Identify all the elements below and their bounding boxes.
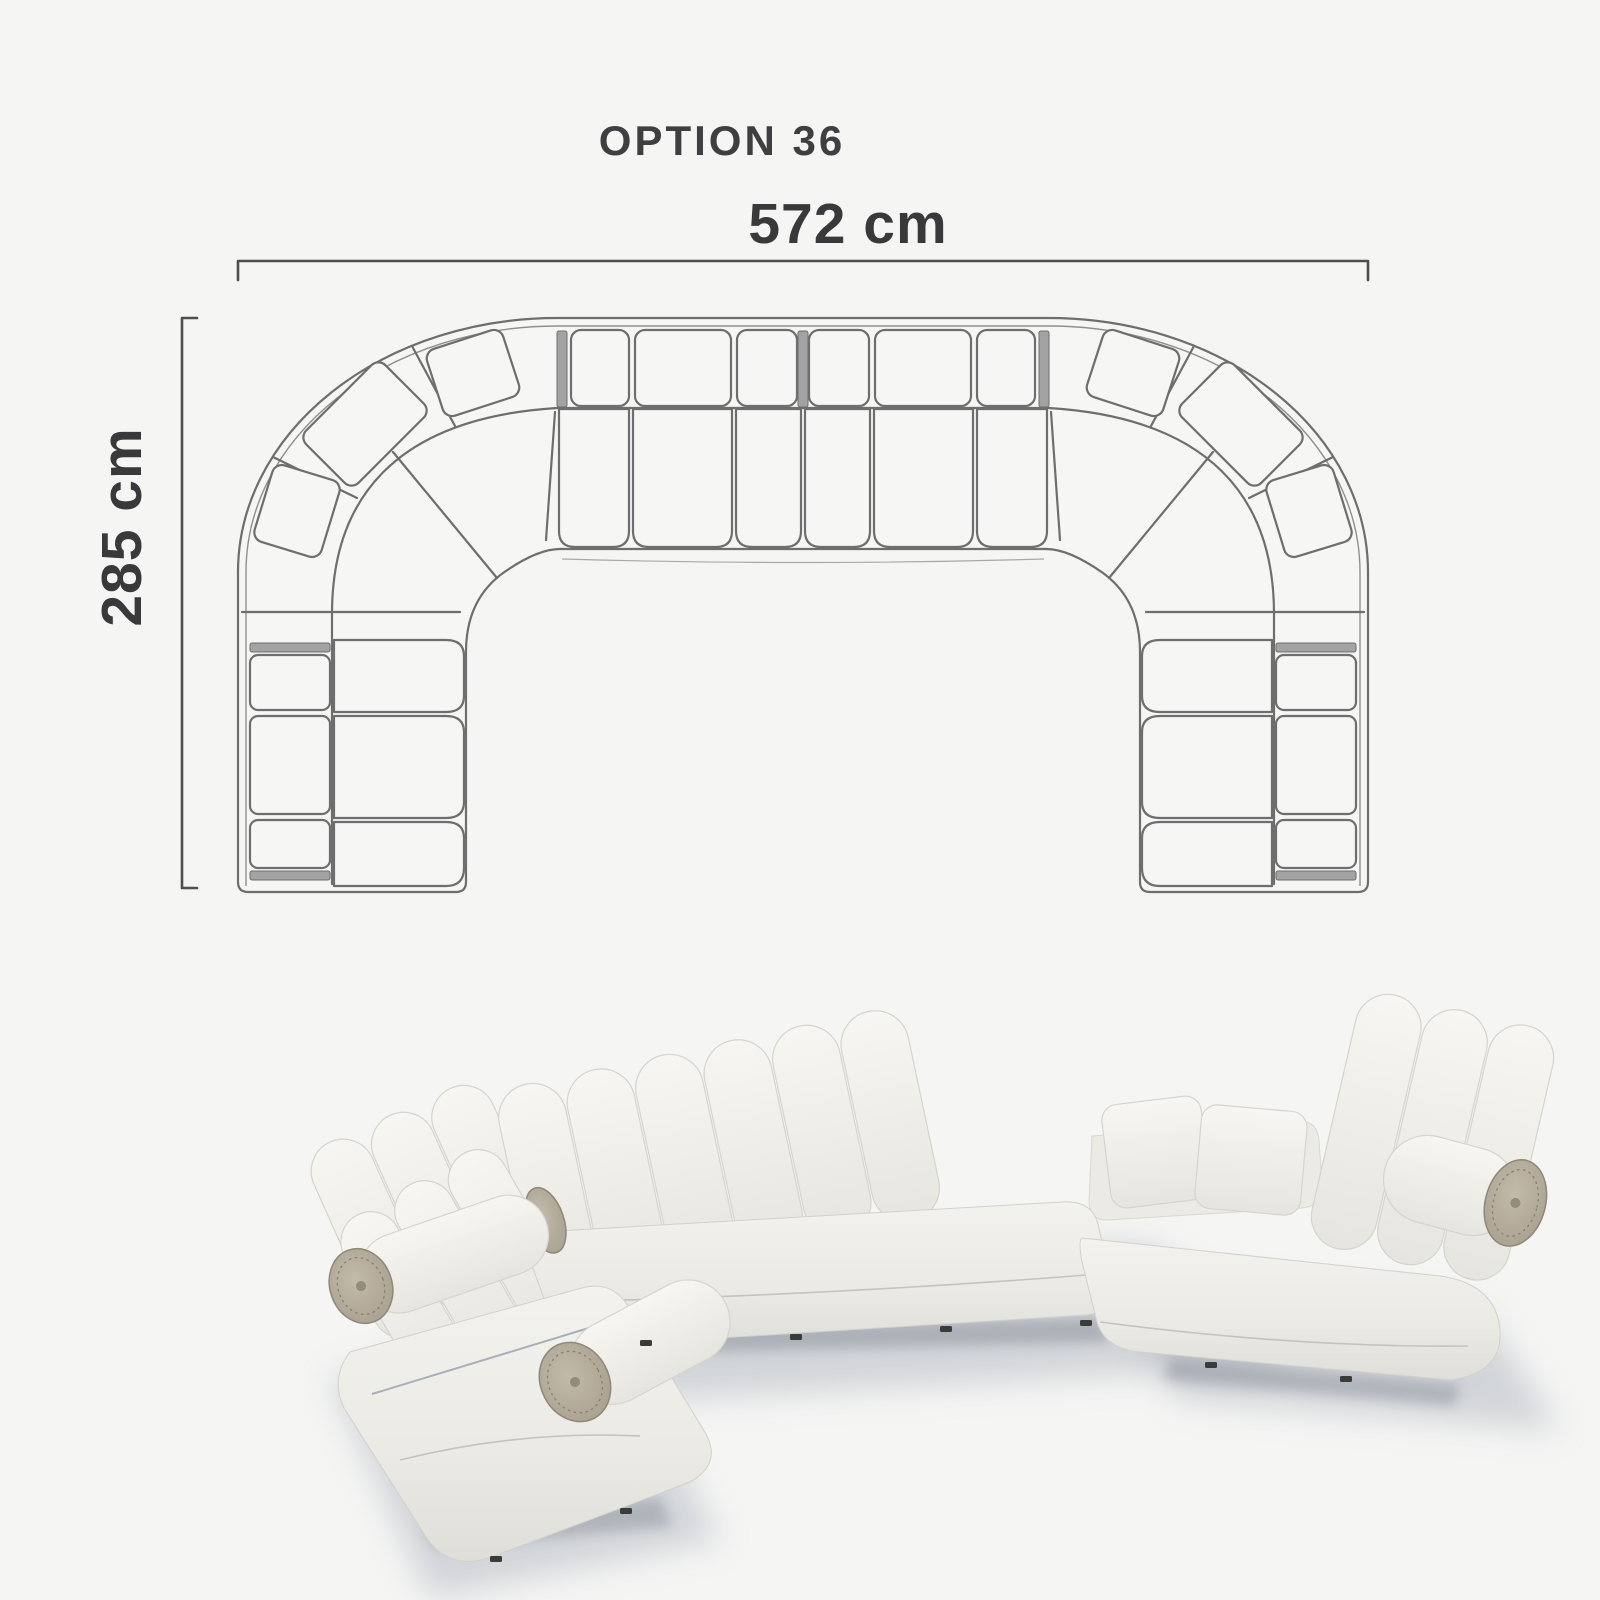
sofa-3d-render	[301, 988, 1560, 1598]
back-cushion	[1276, 820, 1356, 868]
product-spec-image: OPTION 36 572 cm 285 cm	[0, 0, 1600, 1600]
seat-module	[334, 716, 464, 818]
width-dimension-label: 572 cm	[748, 192, 947, 256]
foot	[640, 1340, 652, 1346]
seat-module	[805, 409, 870, 547]
back-cushion	[635, 330, 731, 406]
seat-module	[633, 409, 732, 547]
foot	[940, 1326, 952, 1332]
back-cushion	[977, 330, 1035, 406]
left-leg-modules	[250, 640, 464, 886]
throw-pillow	[1194, 1104, 1309, 1217]
divider-bar	[250, 643, 330, 652]
back-cushion	[1276, 655, 1356, 710]
foot	[1340, 1376, 1352, 1382]
seat-module	[1142, 822, 1272, 886]
back-cushion	[250, 655, 330, 710]
throw-pillows	[1100, 1094, 1308, 1216]
seat-front-edge-line	[562, 559, 1044, 563]
floor-plan-diagram: OPTION 36 572 cm 285 cm	[90, 117, 1368, 892]
back-cushion	[875, 330, 971, 406]
foot	[1205, 1362, 1217, 1368]
back-cushion	[737, 330, 797, 406]
foot	[620, 1508, 632, 1514]
seat-module	[736, 409, 801, 547]
right-leg-modules	[1142, 640, 1356, 886]
back-cushion	[250, 716, 330, 814]
back-cushion	[250, 820, 330, 868]
seat-module	[874, 409, 973, 547]
foot	[490, 1556, 502, 1562]
divider-bar	[1276, 871, 1356, 880]
seat-module	[334, 640, 464, 712]
seat-module	[559, 409, 629, 547]
width-dimension-line	[238, 261, 1368, 280]
plan-title: OPTION 36	[599, 117, 845, 164]
seat-module	[1142, 716, 1272, 818]
back-cushion	[809, 330, 869, 406]
foot	[1080, 1320, 1092, 1326]
seat-module	[334, 822, 464, 886]
divider-bar	[798, 331, 808, 407]
divider-bar	[1039, 331, 1049, 407]
depth-dimension-label: 285 cm	[90, 427, 154, 626]
divider-bar	[557, 331, 567, 407]
depth-dimension-line	[182, 318, 197, 888]
back-cushion	[1276, 716, 1356, 814]
back-cushion	[571, 330, 629, 406]
foot	[790, 1334, 802, 1340]
sofa-top-view-drawing	[238, 318, 1368, 892]
seat-module	[1142, 640, 1272, 712]
divider-bar	[250, 871, 330, 880]
seat-module	[977, 409, 1047, 547]
divider-bar	[1276, 643, 1356, 652]
